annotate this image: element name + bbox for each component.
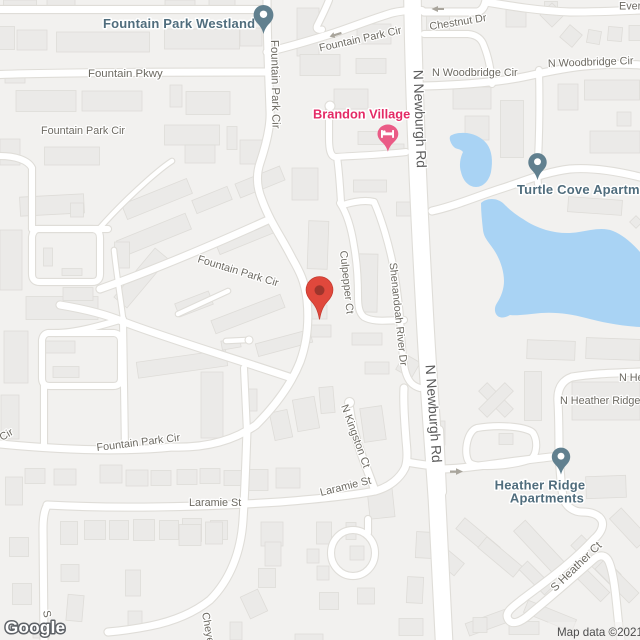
svg-text:Google: Google — [5, 618, 65, 637]
svg-text:Fountain Park Cir: Fountain Park Cir — [268, 40, 282, 129]
svg-text:Turtle Cove Apartme: Turtle Cove Apartme — [517, 182, 640, 197]
svg-text:N Woodbridge Cir: N Woodbridge Cir — [432, 67, 518, 79]
svg-text:Ever: Ever — [619, 1, 640, 13]
svg-text:Brandon Village: Brandon Village — [313, 107, 410, 122]
svg-text:Fountain Park Cir: Fountain Park Cir — [41, 125, 125, 137]
svg-text:Fountain Park Westland: Fountain Park Westland — [103, 16, 255, 31]
svg-text:Apartments: Apartments — [510, 491, 584, 506]
svg-text:Map data ©2021: Map data ©2021 — [557, 626, 640, 639]
svg-text:N He: N He — [619, 372, 640, 384]
svg-text:N Heather Ridge: N Heather Ridge — [560, 395, 640, 407]
svg-text:Fountain Pkwy: Fountain Pkwy — [88, 68, 163, 80]
svg-text:Laramie St: Laramie St — [189, 497, 241, 509]
